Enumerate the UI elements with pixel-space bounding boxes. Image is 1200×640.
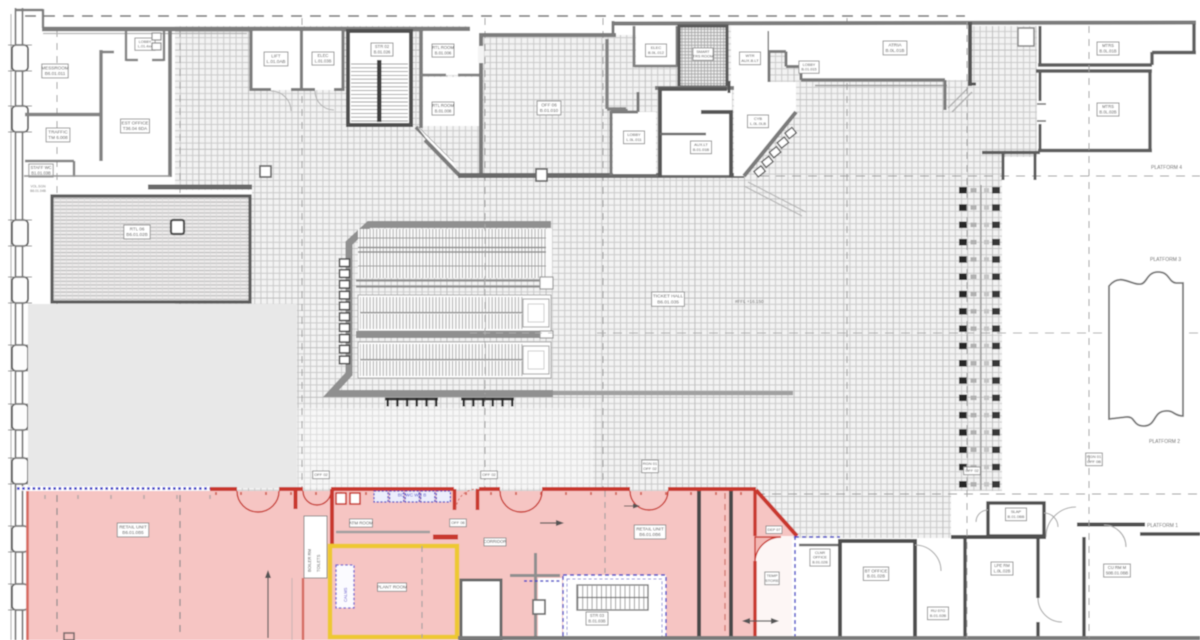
svg-text:B6.01.0B5: B6.01.0B5 [122,530,144,535]
svg-text:EST OFFICE: EST OFFICE [122,121,149,126]
svg-text:BT OFFICE: BT OFFICE [865,568,888,573]
svg-text:BC WC WC B: BC WC WC B [398,493,427,498]
svg-text:OFF 02: OFF 02 [482,472,496,477]
svg-text:TOILETS: TOILETS [316,554,321,572]
svg-text:L.01.03B: L.01.03B [315,58,332,63]
svg-text:B.01.026: B.01.026 [374,49,391,54]
svg-text:TRAFFIC: TRAFFIC [48,130,68,135]
svg-text:CLNR: CLNR [815,551,826,555]
svg-text:B.01.015: B.01.015 [801,68,816,72]
svg-text:B.0L.01B: B.0L.01B [886,48,905,53]
svg-text:RETAIL UNIT: RETAIL UNIT [119,525,147,530]
svg-text:LOBBY: LOBBY [139,40,152,44]
svg-text:TRS ROOM: TRS ROOM [693,55,713,59]
svg-text:B6.01.035: B6.01.035 [657,300,679,306]
svg-text:OFF 06: OFF 06 [541,103,557,108]
svg-text:SMART: SMART [696,50,710,54]
svg-text:PLATFORM 4: PLATFORM 4 [1151,165,1182,171]
svg-text:TICKET HALL: TICKET HALL [653,294,684,300]
svg-text:VOL.SGN: VOL.SGN [30,185,46,189]
svg-text:B6.01.011: B6.01.011 [45,71,66,76]
svg-text:B6.01.04B: B6.01.04B [30,189,47,193]
svg-text:B.01.01B: B.01.01B [693,147,710,152]
svg-text:B.01.02B: B.01.02B [812,560,828,564]
svg-text:B.01.010: B.01.010 [540,108,559,113]
svg-text:MESSROOM: MESSROOM [41,66,68,71]
svg-text:BOILER RM: BOILER RM [307,548,312,572]
svg-text:B.01.006: B.01.006 [435,50,452,55]
svg-text:B.0L.02B: B.0L.02B [1099,109,1116,114]
svg-text:TM 6.008: TM 6.008 [48,135,68,140]
svg-text:50B.01.0BB: 50B.01.0BB [1106,570,1129,575]
svg-text:AUX.B.LT: AUX.B.LT [741,58,759,63]
svg-text:B6.01.0B6: B6.01.0B6 [639,532,661,537]
svg-text:PLATFORM 2: PLATFORM 2 [1149,439,1180,445]
svg-text:L.0L.02B: L.0L.02B [994,568,1011,573]
svg-text:B.01.02B: B.01.02B [930,613,947,618]
svg-text:B6.01.02B: B6.01.02B [126,232,147,237]
svg-text:ATRIA: ATRIA [888,43,902,48]
svg-text:RETAIL UNIT: RETAIL UNIT [636,527,664,532]
svg-text:OFF 02: OFF 02 [643,466,657,471]
svg-text:B.0L.01B: B.0L.01B [1099,48,1116,53]
svg-text:CALMS: CALMS [343,587,348,602]
svg-text:PLANT ROOM: PLANT ROOM [377,585,407,590]
svg-text:#FFL +16.150: #FFL +16.150 [735,299,764,304]
svg-text:B.01.02B: B.01.02B [867,574,885,579]
svg-text:OFFICE: OFFICE [813,556,827,560]
svg-text:ATM ROOM: ATM ROOM [349,520,373,525]
svg-text:B1.01.03B: B1.01.03B [31,170,51,175]
svg-text:RTL 06: RTL 06 [130,227,145,232]
svg-text:STORE: STORE [765,578,779,583]
svg-text:L.01.4xx: L.01.4xx [138,45,152,49]
svg-text:CORRIDOR: CORRIDOR [484,539,507,544]
svg-text:PLATFORM 1: PLATFORM 1 [1147,523,1178,529]
svg-text:B.01.008: B.01.008 [435,108,452,113]
svg-text:B.01.0BB: B.01.0BB [1008,514,1025,519]
svg-text:LOBBY: LOBBY [803,63,816,67]
svg-text:B.0L.012: B.0L.012 [648,50,665,55]
svg-text:L.0L.0LB: L.0L.0LB [750,121,766,126]
svg-text:T36.04 6DA: T36.04 6DA [123,126,148,131]
svg-text:LIFT: LIFT [271,54,281,59]
svg-text:DEP 07: DEP 07 [767,528,780,532]
svg-text:OFF 02: OFF 02 [314,472,328,477]
svg-text:OFF 06: OFF 06 [451,520,465,525]
svg-text:L.01.0AB: L.01.0AB [267,59,286,64]
svg-text:L.0L.011: L.0L.011 [626,137,642,142]
svg-text:PLATFORM 3: PLATFORM 3 [1150,257,1181,263]
svg-text:B.01.03B: B.01.03B [588,618,605,623]
